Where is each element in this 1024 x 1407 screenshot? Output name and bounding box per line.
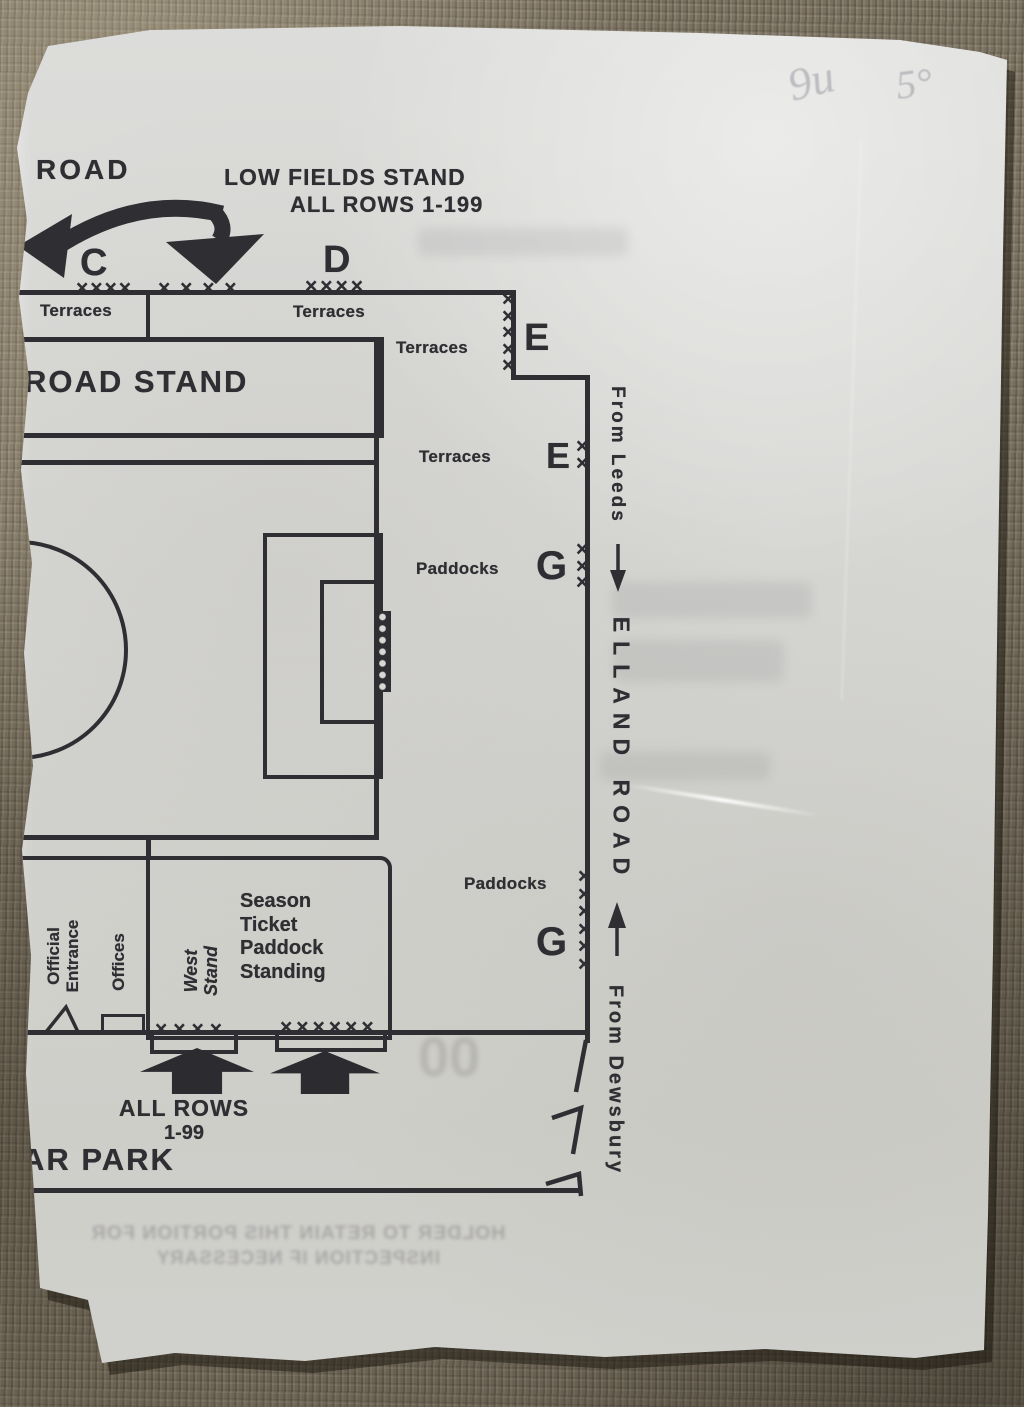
paddocks-label-1: Paddocks (416, 559, 499, 579)
road-stand-label: ROAD STAND (24, 364, 248, 400)
centre-circle (0, 540, 128, 760)
offices-door (101, 1014, 145, 1035)
gate-e2-label: E (546, 438, 570, 474)
turnstiles-g2: × × × × × × (578, 868, 590, 973)
official-entrance-icon (42, 1002, 86, 1034)
pencil-mark: 9u (782, 49, 839, 112)
all-rows-label: ALL ROWS (102, 1095, 266, 1122)
entry-arrow-icon (140, 1048, 254, 1094)
pitch-bottom-line (18, 835, 379, 840)
car-park-line (22, 1188, 580, 1193)
terraces-label-1: Terraces (40, 301, 112, 321)
pitch-top-line (18, 460, 379, 465)
terraces-label-4: Terraces (419, 447, 491, 467)
ghost-smudge (418, 228, 628, 256)
turnstiles-d: ×××× (305, 276, 366, 297)
ghost-holder-text: HOLDER TO RETAIN THIS PORTION FOR (78, 1222, 518, 1245)
curved-direction-arrow-icon (16, 182, 266, 287)
ghost-smudge (614, 640, 784, 682)
gate-e1-label: E (524, 319, 549, 357)
season-ticket-paddock-label: Season Ticket Paddock Standing (240, 890, 326, 984)
from-dewsbury-label: From Dewsbury (604, 985, 627, 1175)
paper-crease (840, 140, 863, 700)
entry-arrow-icon (270, 1051, 380, 1094)
elland-road-label: ELLAND ROAD (608, 617, 635, 883)
terraces-label-3: Terraces (396, 338, 468, 358)
turnstiles-e1: × × × × × (502, 292, 514, 375)
official-entrance-label: Official Entrance (44, 920, 82, 993)
ghost-smudge (612, 582, 812, 618)
terraces-label-2: Terraces (293, 302, 365, 322)
offices-top-line (18, 856, 151, 860)
north-direction-arrow-icon (605, 900, 629, 958)
gate-g2-label: G (536, 922, 567, 962)
gate2-passage (275, 1032, 387, 1052)
photo-of-ticket-on-fabric: 9u 5° ROAD LOW FIELDS STAND ALL ROWS 1-1… (0, 0, 1024, 1407)
terrace-divider-line (146, 292, 150, 339)
pencil-mark: 5° (893, 58, 934, 109)
car-park-label: AR PARK (22, 1142, 175, 1178)
offices-label: Offices (109, 933, 129, 991)
goal-net (374, 611, 391, 692)
road-continuation-marks (540, 1038, 600, 1203)
all-rows-block: ALL ROWS 1-99 (102, 1095, 266, 1145)
paddocks-label-2: Paddocks (464, 874, 547, 894)
ticket-paper: 9u 5° ROAD LOW FIELDS STAND ALL ROWS 1-1… (0, 0, 1024, 1407)
low-fields-rows-subtitle: ALL ROWS 1-199 (290, 192, 483, 218)
corner-step-line (511, 375, 589, 380)
from-leeds-label: From Leeds (606, 386, 628, 524)
west-stand-label: West Stand (181, 946, 221, 996)
south-direction-arrow-icon (607, 542, 629, 594)
ghost-serial-digits: 00 (404, 1024, 494, 1089)
gate-g1-label: G (536, 546, 567, 586)
turnstiles-e2: × × (576, 439, 588, 472)
turnstiles-c2: × × × × (158, 278, 239, 299)
gate-d-label: D (323, 241, 350, 279)
turnstiles-c1: ×××× (76, 278, 133, 299)
paper-crease (623, 782, 821, 817)
turnstiles-g1: × × × (576, 542, 588, 592)
ghost-inspection-text: INSPECTION IF NECESSARY (78, 1248, 518, 1270)
